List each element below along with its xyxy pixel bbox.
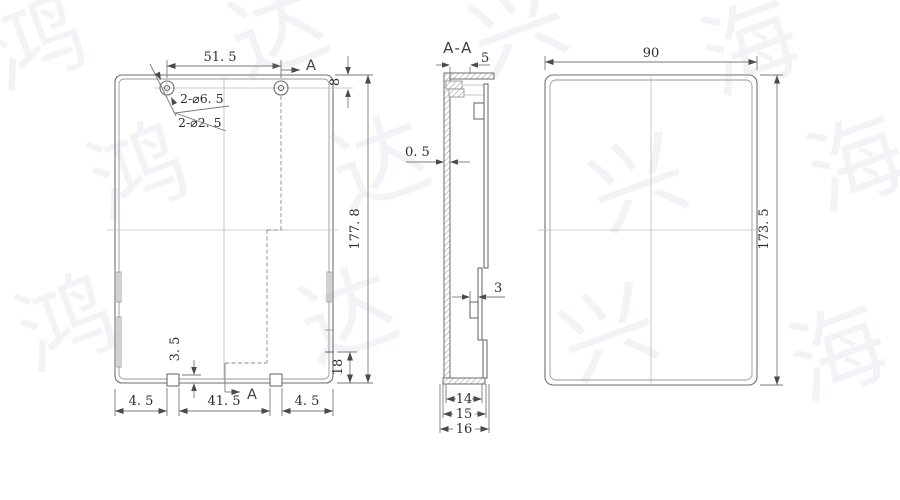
- dim-overall-height: 177. 8: [337, 75, 373, 383]
- dim-text-side-height: 173. 5: [757, 208, 772, 249]
- dim-text-width-mid: 15: [456, 407, 473, 422]
- section-hole-boss: [449, 89, 464, 97]
- section-bottom-flange: [443, 378, 485, 384]
- dim-section-widths: 14 15 16: [440, 384, 489, 437]
- callout-underline: [175, 106, 229, 113]
- section-front-wall: [444, 73, 450, 379]
- callout-text-outer-holes: 2-⌀6. 5: [180, 91, 224, 106]
- section-hole-boss: [446, 81, 462, 89]
- engineering-drawing-page: 鸿 达 兴 海 鸿 达 兴 海 鸿 达 兴 海: [0, 0, 900, 500]
- bottom-tab-right: [270, 374, 282, 386]
- front-view: 2-⌀6. 5 2-⌀2. 5 51. 5 A: [107, 50, 373, 416]
- dim-text-flange: 5: [481, 51, 489, 66]
- section-top-flange: [444, 73, 494, 79]
- clip-tab: [474, 103, 484, 119]
- dim-wall-thickness: 0. 5: [405, 145, 470, 165]
- dim-text-clip: 3: [494, 281, 502, 296]
- section-letter-bottom: A: [247, 387, 257, 403]
- dim-text-hole-offset: 8: [328, 78, 343, 86]
- dim-text-tab-height: 3. 5: [168, 337, 183, 362]
- bottom-tab-left: [167, 374, 179, 386]
- dim-text-wall-thickness: 0. 5: [405, 145, 430, 160]
- callout-text-inner-holes: 2-⌀2. 5: [178, 115, 222, 130]
- section-arrow-top: A: [281, 58, 316, 74]
- dim-text-bottom-middle: 41. 5: [207, 394, 240, 409]
- dim-text-side-feature: 18: [331, 359, 346, 376]
- leader-line: [150, 64, 176, 116]
- dim-hole-top-offset: 8: [328, 56, 354, 108]
- dim-text-width-inner: 14: [456, 392, 473, 407]
- dim-tab-height: 3. 5: [168, 337, 201, 398]
- side-view: 90 173. 5: [538, 46, 783, 385]
- dim-side-height: 173. 5: [757, 75, 783, 385]
- dim-text-side-width: 90: [643, 46, 660, 61]
- clip-tab: [470, 302, 478, 318]
- section-view: A-A 5: [405, 39, 505, 437]
- dim-bottom-chain: 4. 5 41. 5 4. 5: [115, 388, 333, 416]
- dim-text-width-outer: 16: [456, 422, 473, 437]
- dim-text-bottom-left: 4. 5: [129, 394, 154, 409]
- edge-slots: [117, 272, 334, 367]
- dim-side-width: 90: [545, 46, 757, 70]
- dim-hole-spacing: 51. 5: [167, 50, 281, 78]
- dim-text-bottom-right: 4. 5: [295, 394, 320, 409]
- dim-text-hole-spacing: 51. 5: [203, 50, 236, 65]
- section-letter-top: A: [306, 58, 316, 74]
- dim-side-feature: 18: [331, 352, 357, 383]
- hole-callout: 2-⌀6. 5 2-⌀2. 5: [150, 64, 229, 131]
- section-back-panel: [470, 84, 488, 378]
- dim-text-overall-height: 177. 8: [348, 208, 363, 249]
- section-cut-line: [225, 96, 281, 392]
- section-title: A-A: [443, 39, 473, 57]
- cad-drawing-canvas: 2-⌀6. 5 2-⌀2. 5 51. 5 A: [0, 0, 900, 500]
